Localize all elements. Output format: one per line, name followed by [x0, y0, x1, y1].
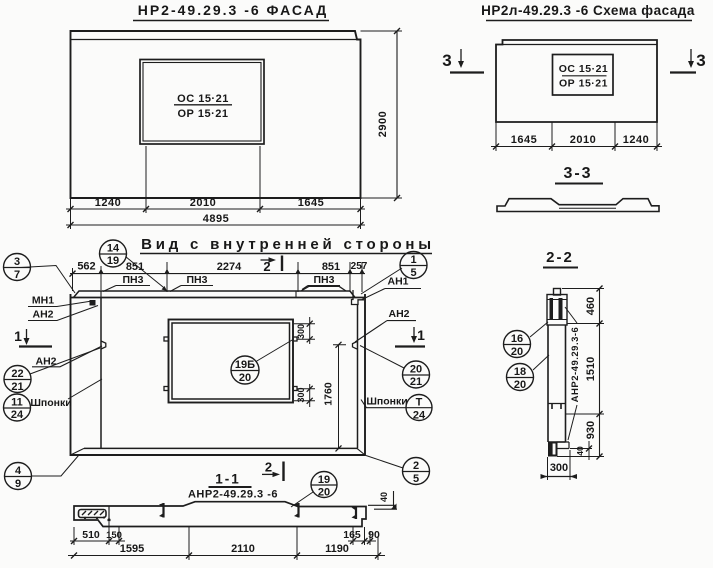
svg-text:150: 150	[106, 530, 122, 541]
svg-text:ОС 15·21: ОС 15·21	[559, 63, 609, 75]
svg-text:ПН3: ПН3	[314, 274, 335, 286]
svg-text:19Б: 19Б	[235, 359, 255, 371]
svg-text:1: 1	[417, 327, 425, 343]
svg-text:АНР2-49.29.3 -6: АНР2-49.29.3 -6	[188, 489, 278, 501]
svg-text:Вид с внутренней стороны: Вид с внутренней стороны	[141, 236, 435, 253]
svg-text:11: 11	[11, 397, 23, 409]
svg-text:562: 562	[77, 261, 95, 273]
svg-text:Шпонки: Шпонки	[30, 397, 71, 409]
svg-text:24: 24	[413, 410, 426, 422]
svg-text:ПН3: ПН3	[187, 274, 208, 286]
svg-text:20: 20	[514, 379, 526, 391]
svg-text:300: 300	[296, 387, 306, 402]
svg-text:19: 19	[107, 255, 119, 267]
svg-text:19: 19	[318, 474, 330, 486]
svg-text:20: 20	[239, 372, 251, 384]
svg-text:20: 20	[410, 364, 422, 376]
svg-text:24: 24	[11, 409, 24, 421]
svg-text:300: 300	[550, 462, 568, 474]
svg-text:2010: 2010	[570, 134, 596, 146]
svg-text:14: 14	[107, 243, 120, 255]
svg-text:2: 2	[413, 460, 419, 472]
svg-text:2010: 2010	[190, 197, 216, 209]
svg-text:22: 22	[11, 368, 23, 380]
svg-text:4895: 4895	[203, 213, 229, 225]
svg-text:300: 300	[296, 324, 306, 339]
svg-text:9: 9	[15, 478, 21, 490]
svg-text:3: 3	[442, 51, 451, 70]
svg-text:257: 257	[351, 261, 368, 272]
svg-text:1: 1	[410, 254, 416, 266]
svg-text:5: 5	[413, 473, 419, 485]
svg-text:851: 851	[126, 261, 144, 273]
svg-text:НР2-49.29.3 -6 ФАСАД: НР2-49.29.3 -6 ФАСАД	[138, 2, 329, 18]
svg-text:АН1: АН1	[387, 276, 408, 288]
svg-text:1: 1	[14, 328, 22, 344]
svg-text:1760: 1760	[323, 382, 335, 406]
svg-text:1595: 1595	[120, 543, 144, 555]
svg-text:165: 165	[343, 529, 361, 541]
svg-text:3: 3	[14, 256, 20, 268]
svg-text:2-2: 2-2	[546, 249, 574, 266]
svg-text:3: 3	[696, 51, 705, 70]
svg-text:1645: 1645	[511, 134, 537, 146]
svg-text:АН2: АН2	[32, 309, 53, 321]
svg-text:ОР 15·21: ОР 15·21	[559, 78, 608, 90]
svg-text:НР2л-49.29.3 -6 Схема фасада: НР2л-49.29.3 -6 Схема фасада	[481, 3, 695, 18]
svg-text:510: 510	[82, 529, 100, 541]
svg-text:1-1: 1-1	[215, 472, 241, 487]
svg-text:16: 16	[511, 333, 523, 345]
svg-text:2900: 2900	[377, 111, 389, 137]
svg-text:40: 40	[379, 492, 389, 502]
svg-text:7: 7	[14, 269, 20, 281]
svg-text:Шпонки: Шпонки	[366, 396, 407, 408]
svg-text:18: 18	[514, 366, 526, 378]
svg-text:ОР 15·21: ОР 15·21	[177, 108, 228, 120]
svg-text:930: 930	[585, 421, 597, 439]
svg-text:5: 5	[410, 267, 416, 279]
svg-text:ПН3: ПН3	[123, 274, 144, 286]
svg-text:1645: 1645	[298, 197, 324, 209]
svg-text:АНР2-49.29.3-6: АНР2-49.29.3-6	[570, 327, 581, 403]
svg-text:1240: 1240	[623, 134, 649, 146]
svg-text:21: 21	[410, 376, 422, 388]
svg-text:2110: 2110	[231, 543, 255, 555]
svg-text:460: 460	[585, 297, 597, 315]
svg-text:2: 2	[265, 460, 272, 475]
svg-text:851: 851	[322, 261, 340, 273]
svg-text:Т: Т	[416, 397, 423, 409]
svg-text:20: 20	[318, 487, 330, 499]
svg-text:1510: 1510	[585, 357, 597, 381]
svg-text:МН1: МН1	[32, 295, 54, 307]
svg-text:3-3: 3-3	[563, 165, 592, 182]
svg-text:1240: 1240	[95, 197, 121, 209]
svg-text:2274: 2274	[217, 261, 242, 273]
svg-text:20: 20	[511, 346, 523, 358]
svg-text:40: 40	[575, 446, 585, 456]
svg-text:АН2: АН2	[388, 308, 409, 320]
svg-text:21: 21	[11, 381, 23, 393]
svg-text:1190: 1190	[325, 543, 349, 555]
svg-text:4: 4	[15, 465, 22, 477]
svg-text:ОС 15·21: ОС 15·21	[177, 93, 229, 105]
